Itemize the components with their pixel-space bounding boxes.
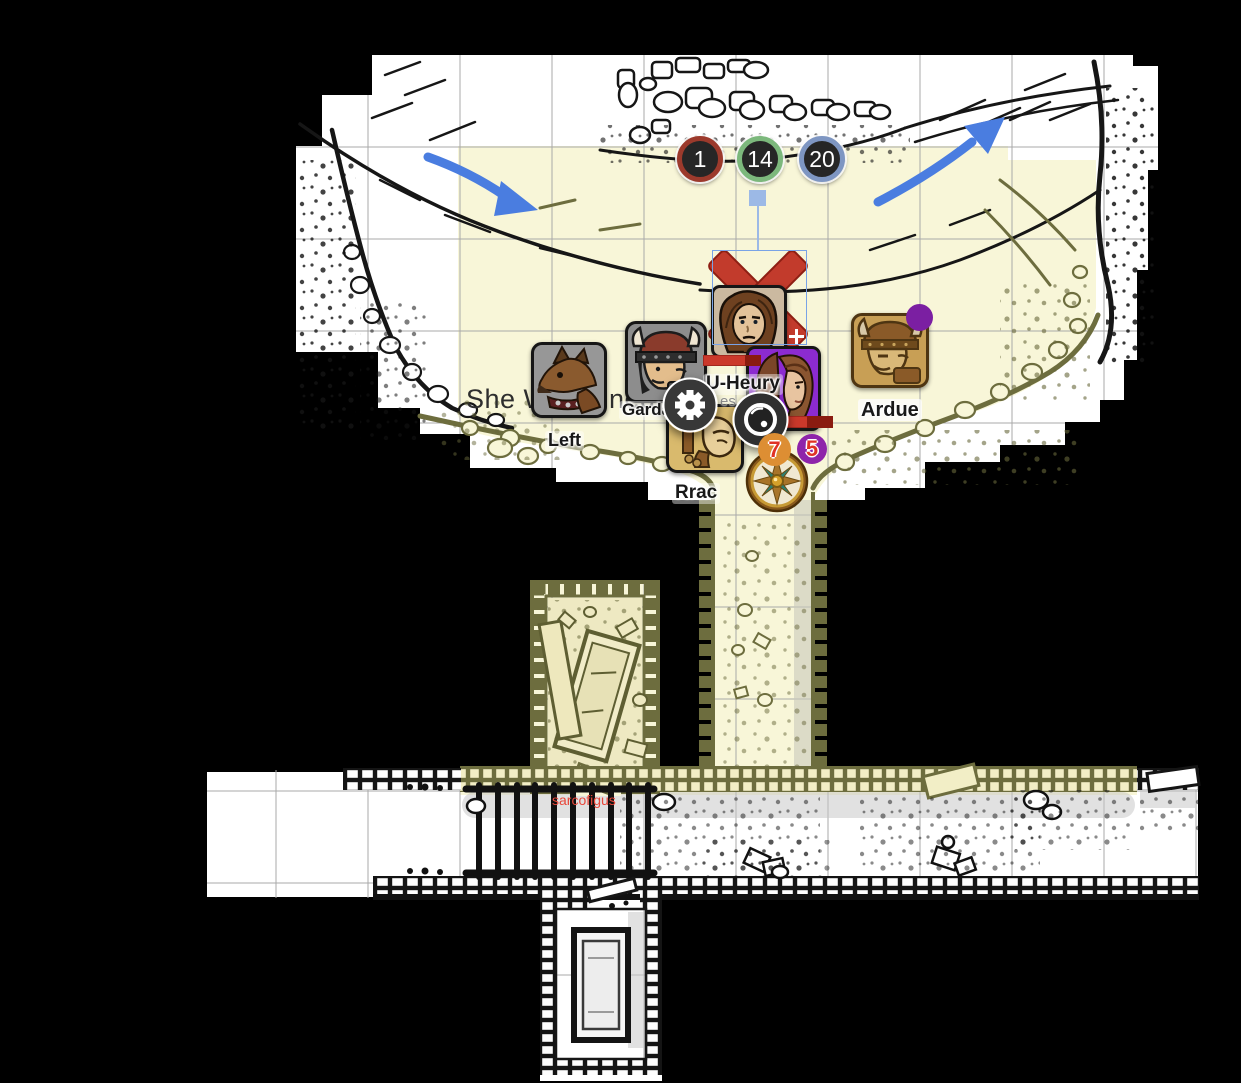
sarcophagus-note: sarcofigus (552, 792, 616, 808)
counter-red[interactable]: 1 (677, 136, 723, 182)
selection-connector (757, 206, 759, 251)
map-label-left: Left (545, 431, 584, 451)
settings-button[interactable] (662, 377, 718, 433)
token-label-rrac: Rrac (672, 483, 720, 504)
health-bar (703, 355, 761, 366)
token-label-ardue: Ardue (858, 399, 922, 421)
map-canvas[interactable]: She W ned the sarcofigus (0, 0, 1241, 1083)
gear-icon (662, 377, 718, 433)
badge-orange[interactable]: 7 (758, 433, 791, 466)
map-artwork (0, 0, 1241, 1083)
dog-token[interactable] (531, 342, 607, 418)
rotate-handle[interactable] (749, 190, 766, 206)
plus-icon[interactable] (789, 329, 804, 344)
dog-portrait (534, 345, 604, 415)
purple-status-dot[interactable] (906, 304, 933, 331)
counter-green[interactable]: 14 (737, 136, 783, 182)
badge-purple[interactable]: 5 (797, 434, 827, 464)
counter-blue[interactable]: 20 (799, 136, 845, 182)
